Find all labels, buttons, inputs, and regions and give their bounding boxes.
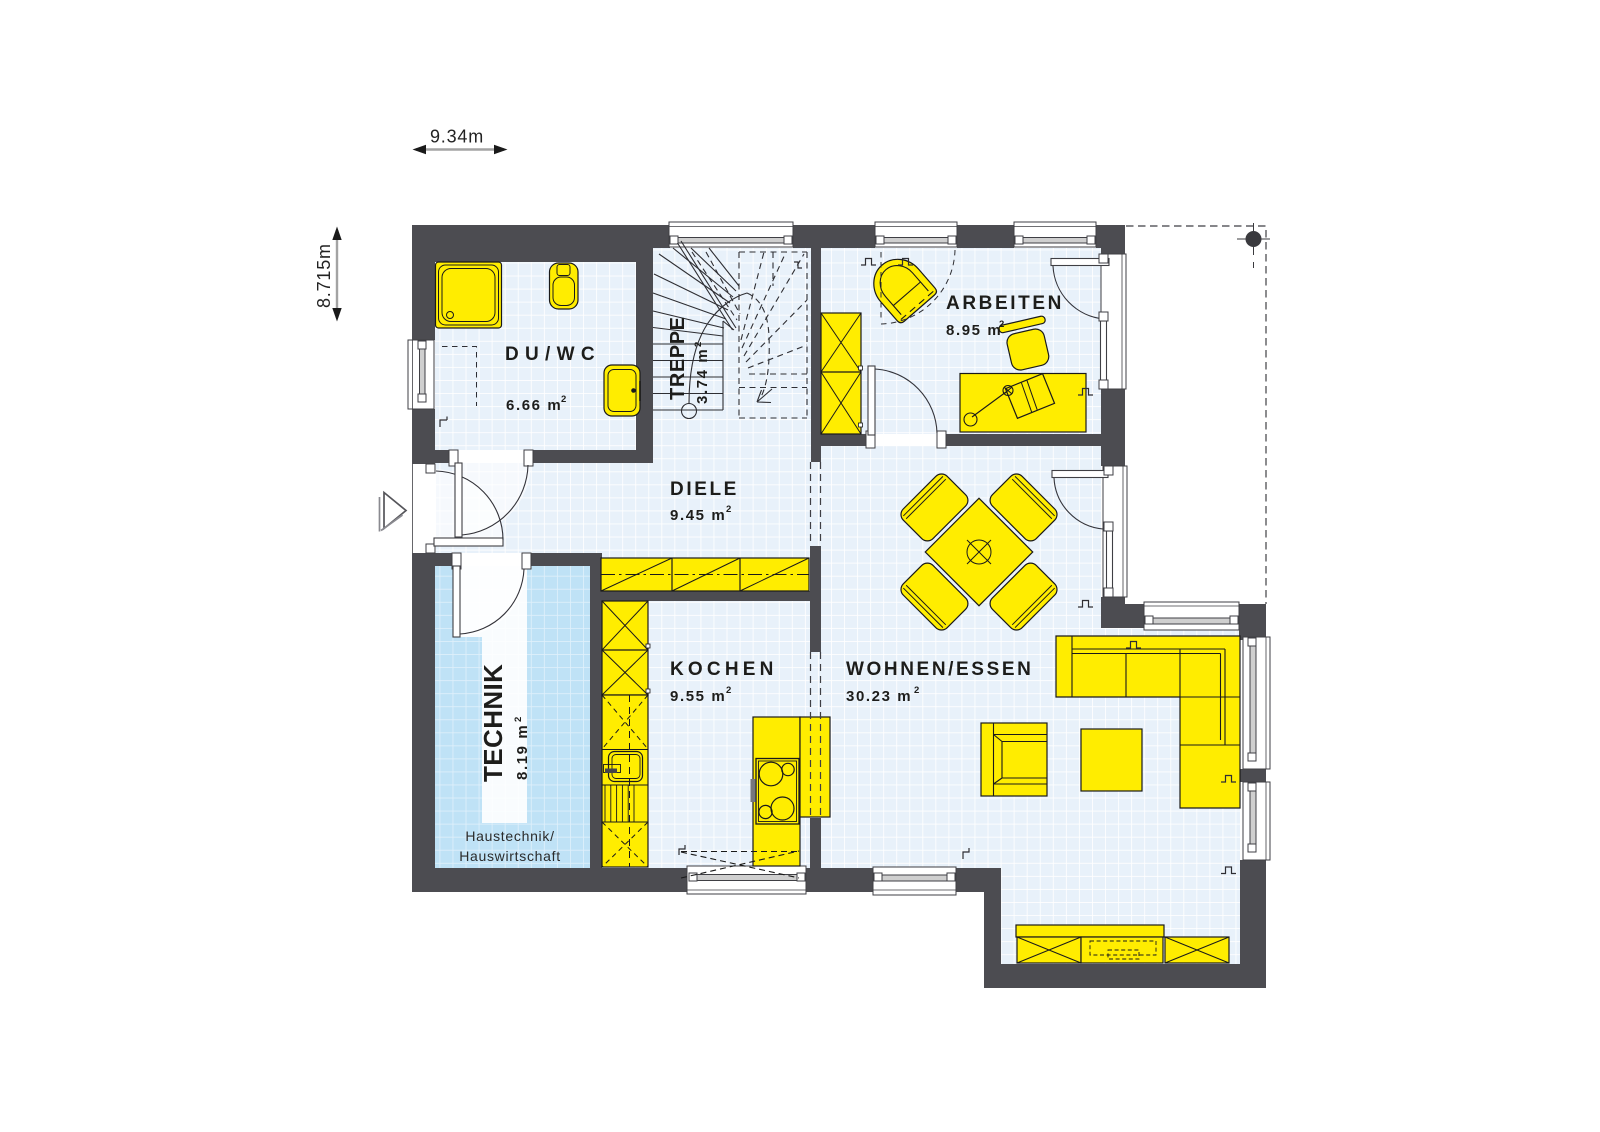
svg-text:3.74 m: 3.74 m (694, 348, 711, 404)
svg-text:2: 2 (726, 504, 731, 515)
svg-text:9.45 m: 9.45 m (670, 507, 726, 524)
svg-text:KOCHEN: KOCHEN (670, 659, 778, 680)
svg-text:TREPPE: TREPPE (667, 316, 689, 400)
svg-text:8.19 m: 8.19 m (514, 724, 531, 780)
svg-text:2: 2 (726, 685, 731, 696)
svg-text:30.23 m: 30.23 m (846, 688, 912, 705)
svg-text:ARBEITEN: ARBEITEN (946, 293, 1064, 314)
svg-text:2: 2 (513, 717, 524, 722)
svg-text:DU/WC: DU/WC (505, 344, 601, 365)
svg-text:2: 2 (999, 319, 1004, 330)
svg-text:8.95 m: 8.95 m (946, 322, 1002, 339)
svg-text:9.55 m: 9.55 m (670, 688, 726, 705)
svg-text:TECHNIK: TECHNIK (478, 664, 508, 782)
svg-text:8.715m: 8.715m (314, 243, 334, 308)
svg-text:Hauswirtschaft: Hauswirtschaft (459, 848, 561, 864)
svg-text:Haustechnik/: Haustechnik/ (465, 828, 554, 844)
svg-text:2: 2 (561, 394, 566, 405)
svg-text:9.34m: 9.34m (430, 127, 484, 147)
svg-text:6.66 m: 6.66 m (506, 397, 562, 414)
svg-text:2: 2 (693, 342, 704, 347)
svg-text:2: 2 (914, 685, 919, 696)
svg-text:DIELE: DIELE (670, 479, 739, 500)
svg-text:WOHNEN/ESSEN: WOHNEN/ESSEN (846, 659, 1033, 680)
